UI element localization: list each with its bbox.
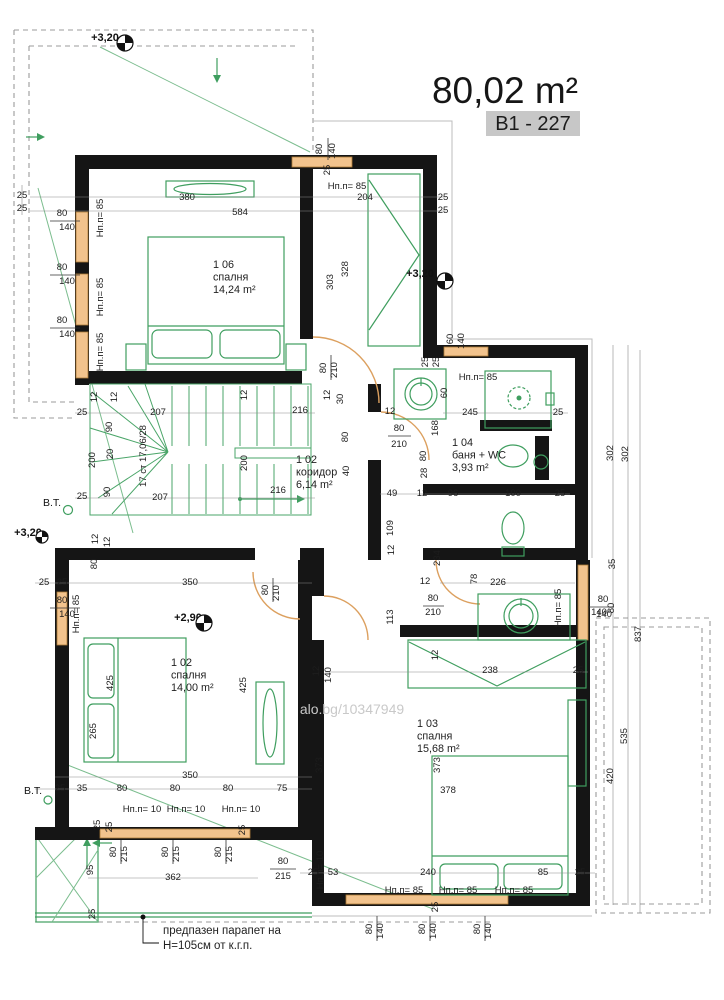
dim-label: 12 <box>322 390 333 401</box>
dim-label: 140 <box>428 923 439 939</box>
dim-label: 28 <box>419 468 430 479</box>
svg-text:1 02: 1 02 <box>171 657 192 669</box>
dim-label: 25 <box>322 165 333 176</box>
dim-label: 362 <box>165 872 181 883</box>
elevation-marker: +3,20 <box>14 527 48 543</box>
svg-text:6,14 m²: 6,14 m² <box>296 479 333 491</box>
dim-label: 80 <box>57 262 68 273</box>
dim-label: 60 <box>445 334 456 345</box>
dim-label: 210 <box>329 362 340 378</box>
dim-label: 25 <box>438 192 449 203</box>
dim-label: 215 <box>224 846 235 862</box>
dim-label: 85 <box>538 867 549 878</box>
unit-code: B1 - 227 <box>495 113 571 135</box>
dim-label: 425 <box>105 675 116 691</box>
elevation-marker: +3,20 <box>91 32 133 51</box>
dim-label: 140 <box>327 143 338 159</box>
dim-label: 25 <box>55 783 66 794</box>
dim-label: 140 <box>591 607 607 618</box>
svg-text:15,68 m²: 15,68 m² <box>417 743 460 755</box>
dim-label: 113 <box>385 609 396 624</box>
sill-height-label: Нп.п= 85 <box>95 333 106 372</box>
dim-label: 80 <box>606 603 617 614</box>
dim-label: 12 <box>89 392 100 403</box>
dim-label: 20 <box>105 449 116 460</box>
dim-label: 350 <box>182 577 198 588</box>
dim-label: 80 <box>117 783 128 794</box>
toilet <box>502 512 524 544</box>
dim-label: 140 <box>59 276 75 287</box>
dim-label: 12 <box>420 576 431 587</box>
svg-text:3,93 m²: 3,93 m² <box>452 462 489 474</box>
dim-label: 215 <box>119 846 130 862</box>
dim-label: 204 <box>357 192 373 203</box>
dim-label: 80 <box>160 847 171 858</box>
dimension-labels: 3805842042525252580140801408014080140253… <box>17 143 644 939</box>
note-line2: Н=105см от к.г.п. <box>163 940 252 952</box>
room-label: 1 02спалня14,00 m² <box>171 657 214 694</box>
vent-pipe-symbol <box>44 796 52 804</box>
dim-label: 25 <box>104 822 115 833</box>
dim-label: 350 <box>182 770 198 781</box>
dim-label: 53 <box>328 867 339 878</box>
window <box>578 565 588 640</box>
dim-label: 12 <box>385 406 396 417</box>
dim-label: 12 <box>239 390 250 401</box>
dim-label: 140 <box>483 923 494 939</box>
sill-height-label: Нп.п= 85 <box>495 885 534 896</box>
dim-label: 25 <box>39 577 50 588</box>
room-label: 1 04баня + WC3,93 m² <box>452 437 506 474</box>
room-label: 1 03спалня15,68 m² <box>417 718 460 755</box>
dim-label: 200 <box>87 452 98 468</box>
dim-label: 302 <box>605 445 616 461</box>
window <box>76 212 88 262</box>
sill-height-label: Нп.п= 10 <box>222 804 261 815</box>
dim-label: 80 <box>428 593 439 604</box>
dim-label: 140 <box>323 667 334 683</box>
dim-label: 373 <box>314 757 325 773</box>
pillow <box>152 330 212 358</box>
dim-label: 109 <box>385 520 396 536</box>
dim-label: 80 <box>223 783 234 794</box>
dim-label: 12 <box>430 650 441 661</box>
svg-text:14,00 m²: 14,00 m² <box>171 682 214 694</box>
dim-label: 25 <box>237 825 248 836</box>
dim-label: 96 <box>448 488 459 499</box>
dim-label: 80 <box>472 924 483 935</box>
dim-label: 200 <box>239 455 250 471</box>
pillow <box>220 330 280 358</box>
dim-label: 216 <box>292 405 308 416</box>
bt-label: В.Т. <box>43 497 61 509</box>
nightstand <box>286 344 306 370</box>
sill-height-label: Нп.п= 85 <box>385 885 424 896</box>
dim-label: 378 <box>440 785 456 796</box>
dim-label: 140 <box>375 923 386 939</box>
dim-label: 215 <box>275 871 291 882</box>
roof-edge-lines <box>312 121 592 916</box>
window <box>76 274 88 325</box>
dim-label: 80 <box>57 315 68 326</box>
svg-text:1 03: 1 03 <box>417 718 438 730</box>
window <box>100 829 250 838</box>
dim-label: 35 <box>607 559 618 570</box>
door-arc <box>324 596 368 640</box>
dim-label: 210 <box>271 585 282 601</box>
dim-label: 25 <box>575 867 586 878</box>
svg-text:14,24 m²: 14,24 m² <box>213 284 256 296</box>
svg-text:коридор: коридор <box>296 467 337 479</box>
dim-label: 80 <box>57 208 68 219</box>
note-line1: предпазен парапет на <box>163 925 282 937</box>
dim-label: 80 <box>364 924 375 935</box>
dim-label: 25 <box>77 407 88 418</box>
wardrobe <box>408 640 586 688</box>
sill-height-label: Нп.п= 85 <box>71 595 82 634</box>
dim-label: 265 <box>88 723 99 739</box>
svg-text:+3,20: +3,20 <box>406 268 434 280</box>
page-title: 80,02 m² <box>432 70 578 111</box>
nightstand <box>126 344 146 370</box>
dim-label: 25 <box>438 205 449 216</box>
svg-text:баня + WC: баня + WC <box>452 450 506 462</box>
dim-label: 80 <box>108 847 119 858</box>
dim-label: 207 <box>150 407 166 418</box>
dim-label: 30 <box>335 394 346 405</box>
dim-label: 373 <box>432 757 443 773</box>
dim-label: 25 <box>553 407 564 418</box>
dim-label: 420 <box>605 768 616 784</box>
dim-label: 100 <box>505 488 521 499</box>
dim-label: 234 <box>432 550 443 566</box>
dim-label: 25 <box>77 491 88 502</box>
dim-label: 80 <box>340 432 351 443</box>
dim-label: 245 <box>462 407 478 418</box>
dim-label: 380 <box>179 192 195 203</box>
note-leader <box>141 915 160 944</box>
window <box>346 895 508 904</box>
dim-label: 90 <box>102 487 113 498</box>
dim-label: 80 <box>417 924 428 935</box>
dim-label: 25 <box>17 190 28 201</box>
dim-label: 328 <box>340 261 351 277</box>
sill-height-label: Нп.п= 10 <box>315 851 326 890</box>
dim-label: 25 <box>555 488 566 499</box>
dim-label: 207 <box>152 492 168 503</box>
dim-label: 584 <box>232 207 248 218</box>
dim-label: 80 <box>314 144 325 155</box>
dim-label: 140 <box>59 329 75 340</box>
dim-label: 40 <box>341 466 352 477</box>
sill-height-label: Нп.п= 10 <box>167 804 206 815</box>
sill-height-label: Нп.п= 10 <box>123 804 162 815</box>
dim-label: 425 <box>238 677 249 693</box>
dim-label: 12 <box>102 537 113 548</box>
watermark: alo.bg/10347949 <box>300 701 405 717</box>
bt-label: В.Т. <box>24 785 42 797</box>
dim-label: 80 <box>89 559 100 570</box>
dim-label: 210 <box>425 607 441 618</box>
svg-text:+3,20: +3,20 <box>91 32 119 44</box>
sill-height-label: Нп.п= 85 <box>95 278 106 317</box>
svg-text:спалня: спалня <box>213 272 249 284</box>
dim-label: 168 <box>430 420 441 436</box>
svg-text:1 06: 1 06 <box>213 259 234 271</box>
dim-label: 240 <box>420 867 436 878</box>
sill-height-label: Нп.п= 85 <box>459 372 498 383</box>
floor-plan-page: 3805842042525252580140801408014080140253… <box>0 0 724 1000</box>
dim-label: 80 <box>394 423 405 434</box>
dim-label: 140 <box>59 222 75 233</box>
dim-label: 49 <box>387 488 398 499</box>
fraction-lines <box>50 138 614 941</box>
dim-label: 12 <box>386 545 397 556</box>
dim-label: 80 <box>213 847 224 858</box>
dim-label: 303 <box>325 274 336 290</box>
dim-label: 80 <box>260 585 271 596</box>
dim-label: 78 <box>469 574 480 585</box>
dim-label: 215 <box>171 846 182 862</box>
dim-label: 80 <box>318 363 329 374</box>
dim-label: 216 <box>270 485 286 496</box>
dim-label: 25 <box>420 357 431 368</box>
dresser <box>256 682 284 764</box>
dim-label: 25 <box>57 577 68 588</box>
dim-label: 12 <box>109 392 120 403</box>
dim-label: 25 <box>92 820 103 831</box>
dim-label: 80 <box>57 595 68 606</box>
sill-height-label: Нп.п= 85 <box>553 589 564 628</box>
sill-height-label: Нп.п= 85 <box>328 181 367 192</box>
room-label: 1 06спалня14,24 m² <box>213 259 256 296</box>
dim-label: 238 <box>482 665 498 676</box>
dim-label: 25 <box>431 357 442 368</box>
dim-label: 25 <box>17 203 28 214</box>
dim-label: 210 <box>391 439 407 450</box>
window <box>76 332 88 378</box>
dim-label: 302 <box>620 446 631 462</box>
dim-label: 25 <box>87 909 98 920</box>
svg-text:1 02: 1 02 <box>296 454 317 466</box>
dim-label: 140 <box>456 333 467 349</box>
svg-text:спалня: спалня <box>171 670 207 682</box>
dim-label: 12 <box>417 488 428 499</box>
dim-label: 226 <box>490 577 506 588</box>
dim-label: 75 <box>277 783 288 794</box>
svg-text:спалня: спалня <box>417 731 453 743</box>
dim-label: 25 <box>430 902 441 913</box>
dim-label: 837 <box>633 626 644 642</box>
room-label: 1 02коридор6,14 m² <box>296 454 337 491</box>
dim-label: 12 <box>90 534 101 545</box>
vent-pipe-symbol <box>64 506 73 515</box>
dim-label: 80 <box>170 783 181 794</box>
elevation-marker: +2,90 <box>174 612 212 631</box>
dim-label: 60 <box>439 388 450 399</box>
dim-label: 95 <box>85 865 96 876</box>
stairs-label: 17 ст 17,06/28 <box>138 425 149 487</box>
stair-direction-arrow <box>297 495 305 503</box>
dim-label: 35 <box>77 783 88 794</box>
svg-text:1 04: 1 04 <box>452 437 473 449</box>
dim-label: 80 <box>418 451 429 462</box>
dim-label: 25 <box>573 665 584 676</box>
sill-height-label: Нп.п= 85 <box>95 199 106 238</box>
sill-height-label: Нп.п= 85 <box>439 885 478 896</box>
fixtures-layer <box>394 369 570 640</box>
dim-label: 80 <box>278 856 289 867</box>
dim-label: 535 <box>619 728 630 744</box>
floor-plan-drawing: 3805842042525252580140801408014080140253… <box>0 0 724 1000</box>
dim-label: 12 <box>311 666 322 677</box>
bed <box>148 237 284 364</box>
dim-label: 90 <box>104 422 115 433</box>
